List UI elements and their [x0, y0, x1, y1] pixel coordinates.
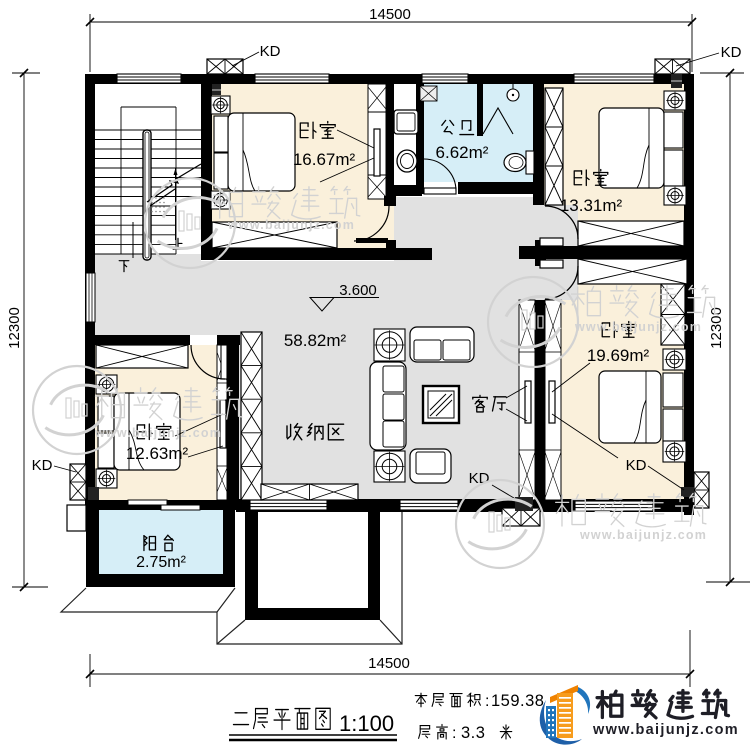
svg-text:14500: 14500 — [368, 655, 410, 672]
svg-text:58.82m²: 58.82m² — [284, 331, 347, 350]
svg-text:16.67m²: 16.67m² — [293, 150, 356, 169]
svg-text:12300: 12300 — [6, 307, 23, 349]
svg-text:www.baijunjz.com: www.baijunjz.com — [579, 528, 707, 542]
svg-text:KD: KD — [32, 457, 53, 474]
svg-text:www.baijunjz.com: www.baijunjz.com — [227, 218, 355, 232]
svg-text::: : — [452, 725, 456, 742]
svg-text:159.38: 159.38 — [491, 692, 544, 710]
svg-text:www.baijunjz.com: www.baijunjz.com — [592, 722, 739, 738]
svg-text:19.69m²: 19.69m² — [587, 346, 650, 365]
svg-text:13.31m²: 13.31m² — [560, 196, 623, 215]
svg-text:KD: KD — [260, 43, 281, 60]
svg-text:KD: KD — [721, 44, 742, 61]
svg-text:2.75m²: 2.75m² — [136, 554, 186, 571]
svg-text:3.3: 3.3 — [461, 724, 485, 742]
svg-text:14500: 14500 — [369, 6, 411, 23]
svg-text:6.62m²: 6.62m² — [436, 143, 489, 162]
svg-text:12.63m²: 12.63m² — [126, 444, 189, 463]
svg-text:3.600: 3.600 — [339, 282, 377, 299]
svg-text::: : — [485, 693, 489, 710]
svg-text:1:100: 1:100 — [339, 711, 394, 736]
svg-text:www.baijunjz.com: www.baijunjz.com — [574, 320, 702, 334]
svg-text:www.baijunjz.com: www.baijunjz.com — [94, 426, 222, 440]
svg-text:12300: 12300 — [708, 307, 725, 349]
svg-text:KD: KD — [626, 457, 647, 474]
